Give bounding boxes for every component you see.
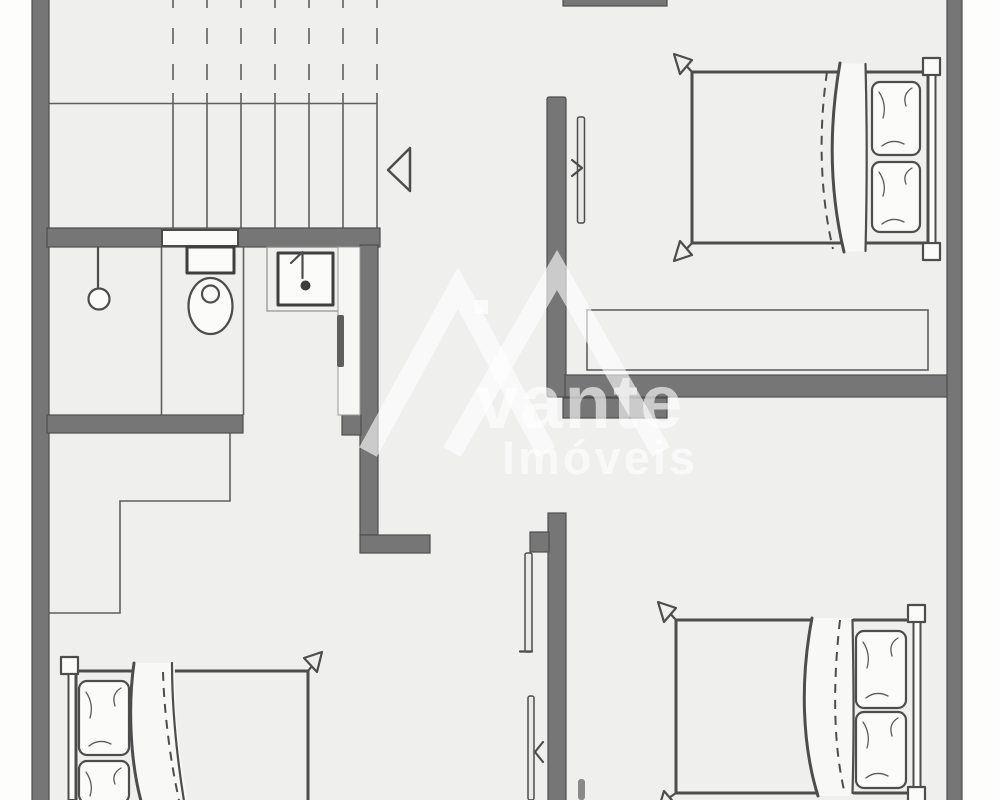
wall-top-bedroom-left	[547, 97, 566, 397]
toilet-icon	[187, 247, 234, 334]
bed-pillows	[79, 681, 129, 800]
bathroom-pocket-door	[337, 247, 360, 415]
wall-bathroom-right-notch	[342, 415, 361, 435]
wall-bottom-stub	[578, 779, 585, 800]
sink-icon	[267, 247, 340, 311]
watermark-logo-window	[474, 300, 488, 314]
wall-bathroom-right-foot	[360, 535, 430, 553]
watermark-subtitle-text: Imóveis	[502, 431, 698, 484]
wall-niche	[162, 230, 238, 246]
wall-bathroom-right	[360, 245, 378, 535]
wall-left	[32, 0, 49, 800]
wall-bathroom-bottom	[47, 415, 243, 433]
bed-blanket	[804, 618, 853, 796]
wall-bottom-middle	[548, 513, 566, 800]
floor-plan-image: vante Imóveis	[0, 0, 1000, 800]
wall-bottom-middle-notch	[530, 532, 549, 552]
wall-top-lintel	[563, 0, 667, 6]
wall-right	[947, 0, 962, 800]
floor-plan-svg: vante Imóveis	[0, 0, 1000, 800]
